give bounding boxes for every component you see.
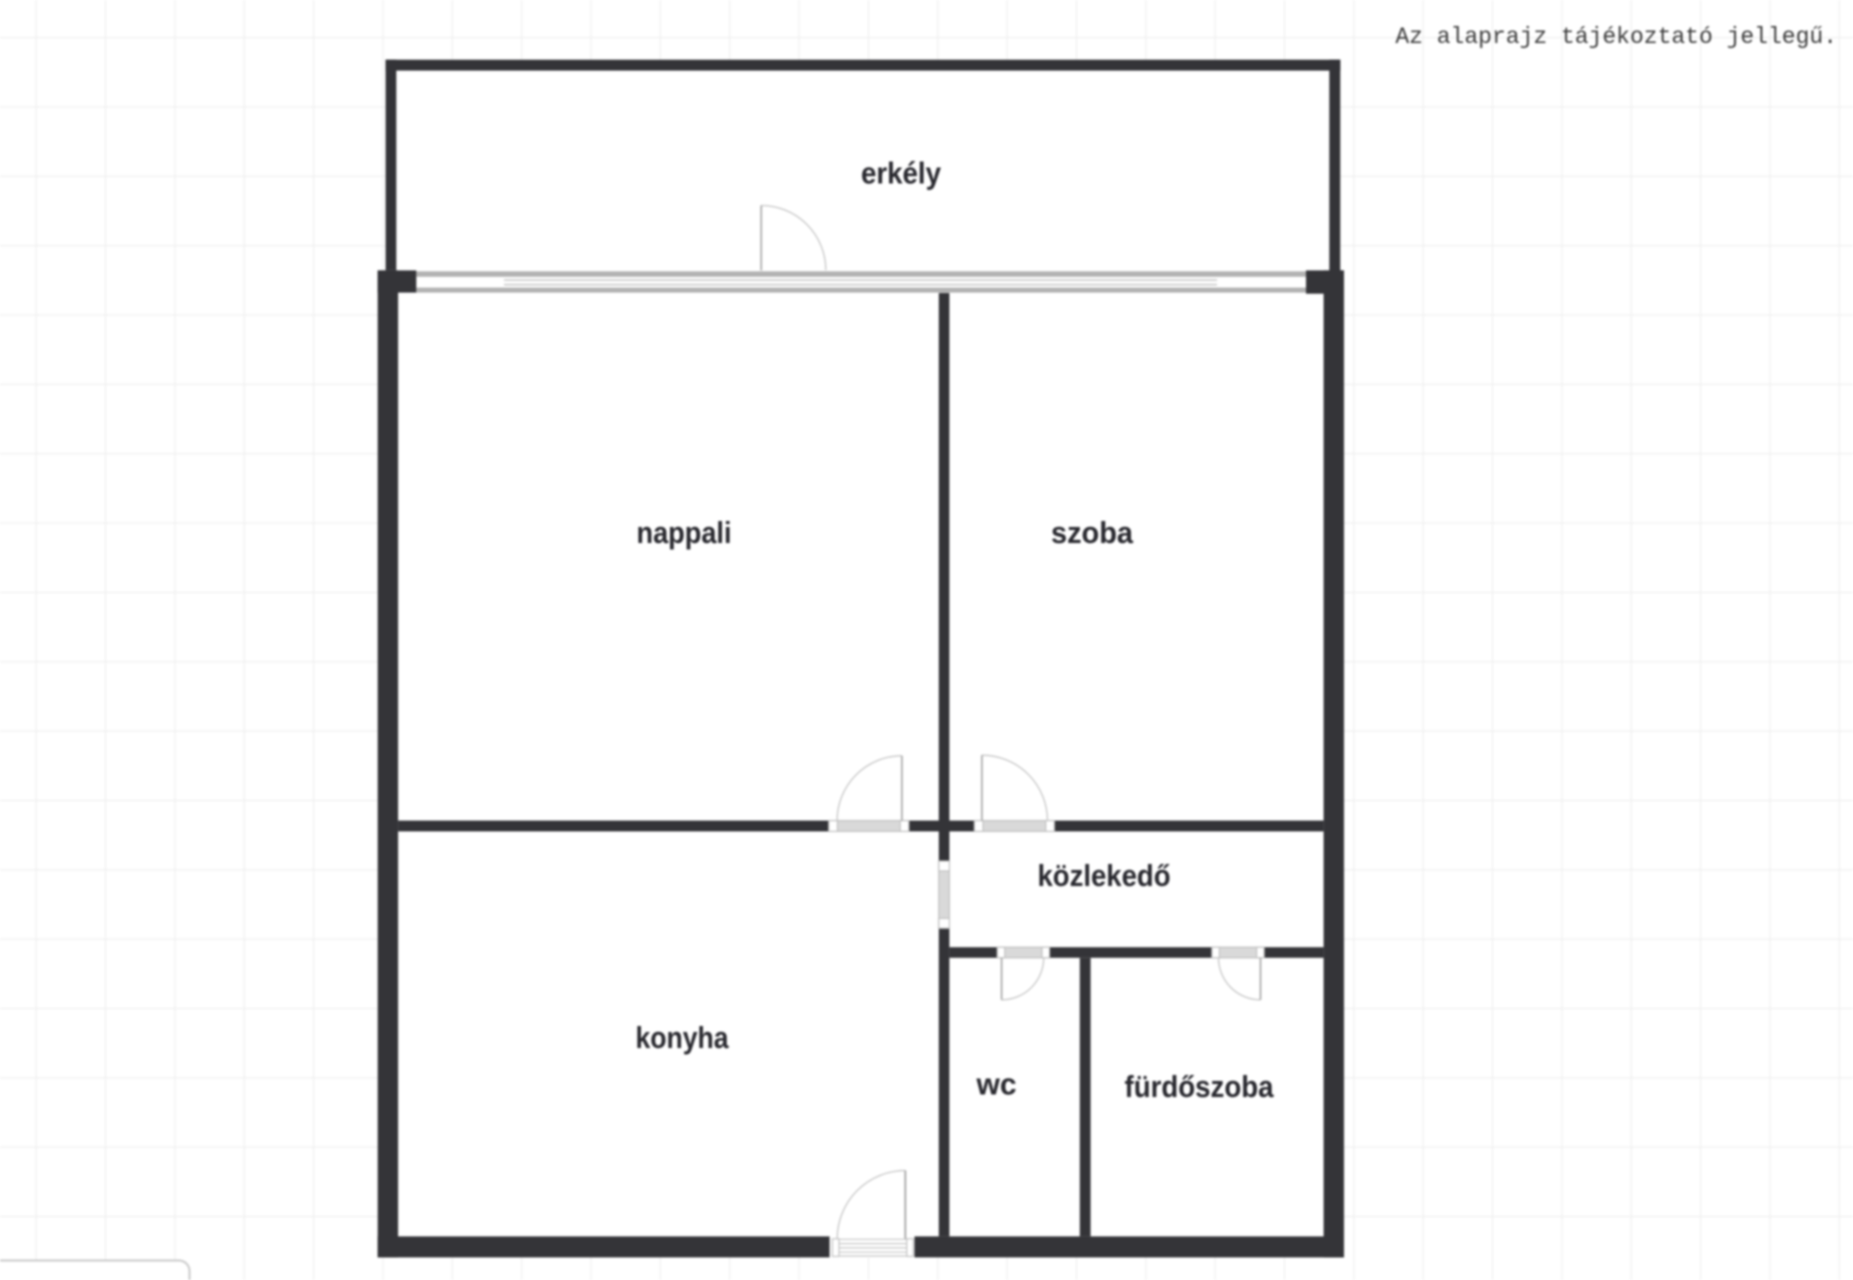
svg-text:fürdőszoba: fürdőszoba <box>1125 1069 1275 1104</box>
svg-text:erkély: erkély <box>861 156 942 191</box>
svg-text:konyha: konyha <box>636 1020 730 1055</box>
svg-text:szoba: szoba <box>1051 515 1134 550</box>
svg-text:wc: wc <box>976 1067 1017 1102</box>
svg-text:Az alaprajz tájékoztató jelleg: Az alaprajz tájékoztató jellegű. <box>1395 24 1837 50</box>
svg-text:nappali: nappali <box>637 515 732 550</box>
svg-text:közlekedő: közlekedő <box>1038 858 1171 893</box>
